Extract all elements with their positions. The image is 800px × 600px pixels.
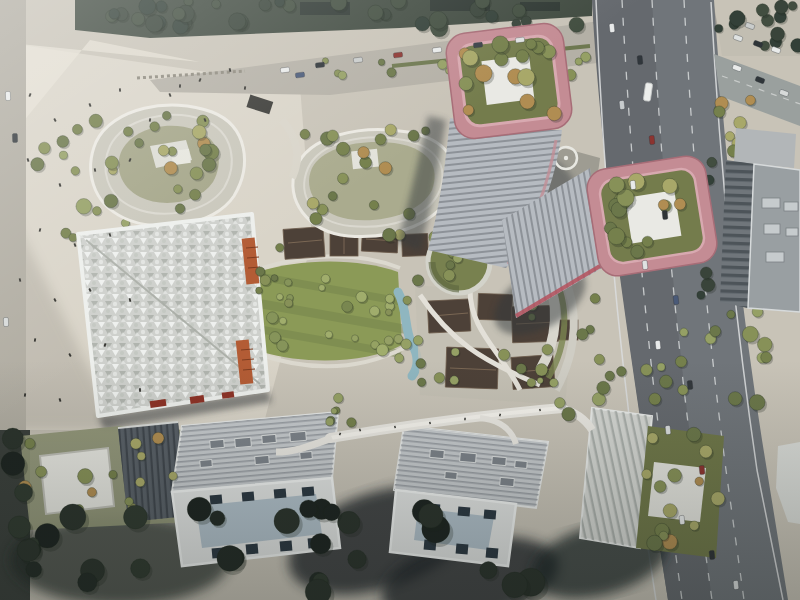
aerial-rendering — [0, 0, 800, 600]
rendering-canvas — [0, 0, 800, 600]
bottom-vignette — [0, 0, 800, 600]
